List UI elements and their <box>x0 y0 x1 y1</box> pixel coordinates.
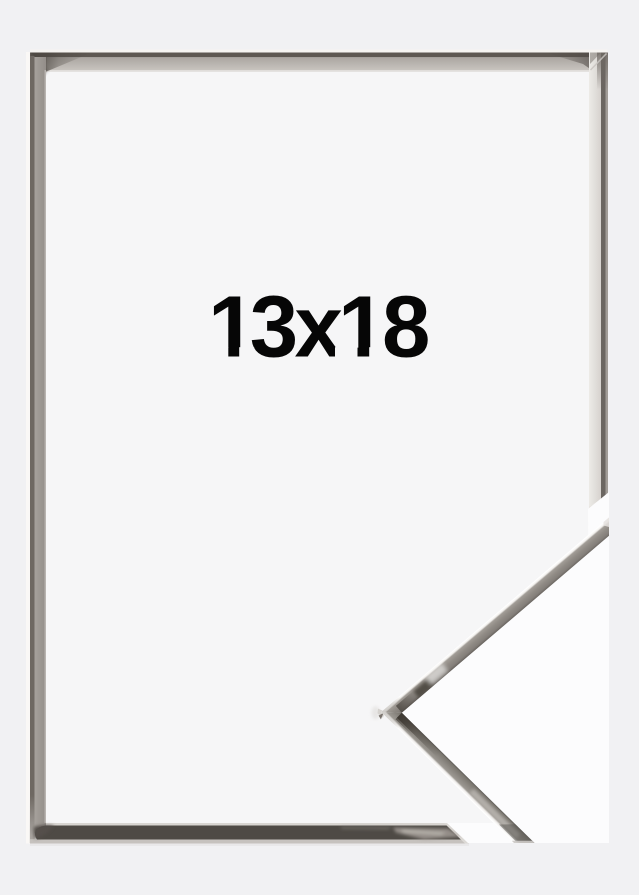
svg-text:1: 1 <box>338 279 386 376</box>
svg-text:3: 3 <box>250 279 298 376</box>
svg-text:8: 8 <box>382 279 430 376</box>
svg-text:x: x <box>295 279 343 376</box>
